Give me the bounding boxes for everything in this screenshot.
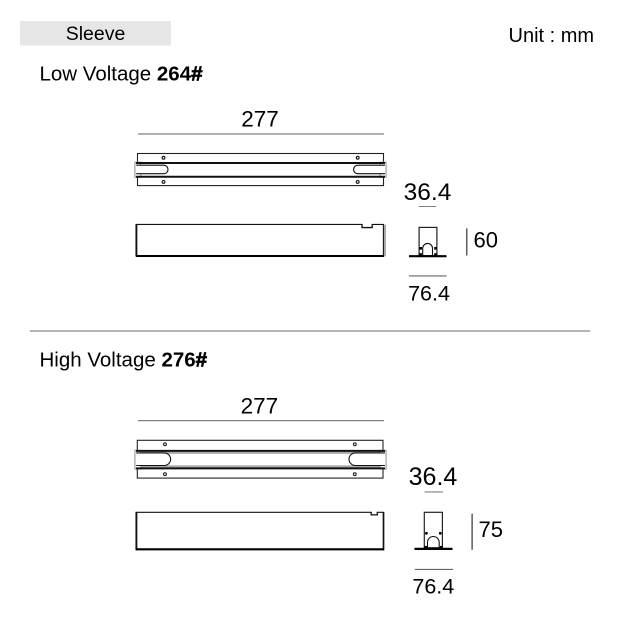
svg-text:Unit : mm: Unit : mm bbox=[509, 25, 595, 47]
svg-text:60: 60 bbox=[474, 228, 498, 253]
svg-text:76.4: 76.4 bbox=[408, 282, 450, 306]
svg-text:Low Voltage 264#: Low Voltage 264# bbox=[40, 63, 204, 86]
svg-text:277: 277 bbox=[241, 394, 279, 419]
svg-text:36.4: 36.4 bbox=[404, 179, 452, 206]
svg-text:277: 277 bbox=[241, 107, 279, 132]
svg-text:75: 75 bbox=[479, 517, 503, 542]
svg-text:Sleeve: Sleeve bbox=[66, 23, 126, 45]
svg-text:36.4: 36.4 bbox=[409, 463, 458, 491]
svg-text:76.4: 76.4 bbox=[412, 574, 454, 598]
svg-text:High Voltage 276#: High Voltage 276# bbox=[40, 348, 208, 371]
